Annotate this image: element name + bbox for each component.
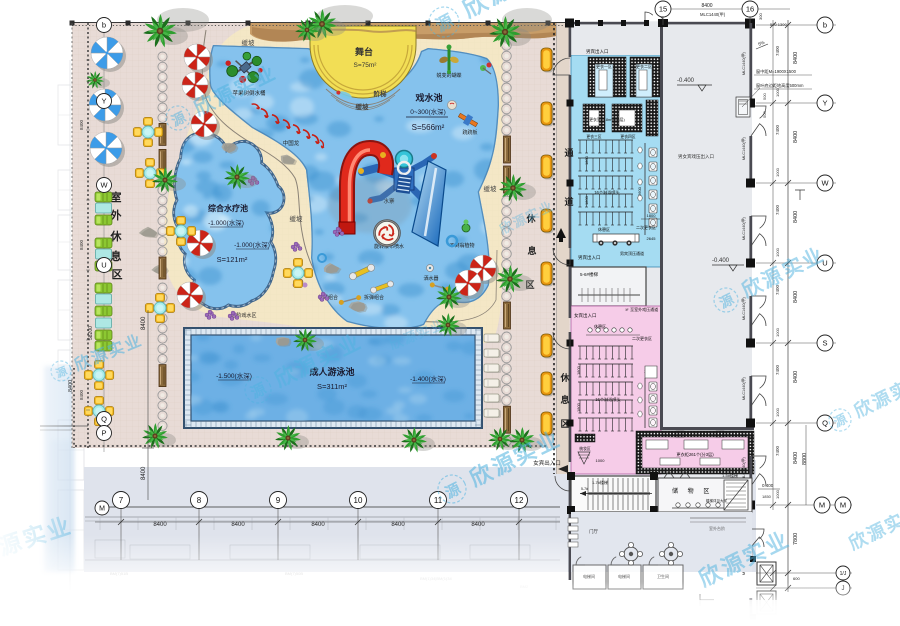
svg-text:息: 息 xyxy=(527,245,536,256)
svg-text:M: M xyxy=(819,501,825,510)
svg-text:1000: 1000 xyxy=(775,87,780,97)
svg-text:MLC1440(甲): MLC1440(甲) xyxy=(741,376,746,400)
svg-text:休憩区: 休憩区 xyxy=(598,226,610,232)
svg-text:更衣一区: 更衣一区 xyxy=(596,63,612,69)
svg-text:S: S xyxy=(822,339,827,348)
svg-text:梳妆区: 梳妆区 xyxy=(579,446,591,451)
svg-text:7400: 7400 xyxy=(775,445,780,456)
svg-text:1-5#楼梯: 1-5#楼梯 xyxy=(722,472,738,478)
svg-text:12: 12 xyxy=(515,496,524,505)
svg-text:8400: 8400 xyxy=(391,522,405,528)
svg-text:更衣二区: 更衣二区 xyxy=(636,63,652,69)
svg-text:8400: 8400 xyxy=(793,291,799,303)
svg-text:1850: 1850 xyxy=(762,494,772,499)
svg-text:8400: 8400 xyxy=(79,389,84,400)
svg-text:9: 9 xyxy=(276,496,281,505)
svg-text:8400: 8400 xyxy=(793,131,799,143)
svg-text:-1.400(水深): -1.400(水深) xyxy=(410,374,446,383)
svg-text:8400: 8400 xyxy=(311,522,325,528)
svg-text:休: 休 xyxy=(559,372,570,383)
svg-text:W: W xyxy=(821,179,829,188)
svg-text:卫生间: 卫生间 xyxy=(657,573,669,579)
svg-text:S=566m²: S=566m² xyxy=(412,123,445,132)
svg-text:戏水池: 戏水池 xyxy=(414,92,442,103)
svg-text:8400: 8400 xyxy=(793,52,799,64)
svg-text:7: 7 xyxy=(119,496,124,505)
svg-text:跷跷板: 跷跷板 xyxy=(462,129,477,136)
svg-text:☞ 至室外戏压通道: ☞ 至室外戏压通道 xyxy=(625,306,658,312)
svg-text:更衣四区: 更衣四区 xyxy=(620,134,635,139)
svg-text:-1.000(水深): -1.000(水深) xyxy=(234,240,270,249)
svg-text:通: 通 xyxy=(564,147,573,158)
svg-text:女宾出入口: 女宾出入口 xyxy=(574,312,597,319)
svg-text:缓坡: 缓坡 xyxy=(355,102,370,111)
svg-text:1000: 1000 xyxy=(775,167,780,177)
svg-text:电梯间: 电梯间 xyxy=(618,573,630,579)
svg-text:8400: 8400 xyxy=(471,522,485,528)
svg-text:8400: 8400 xyxy=(793,211,799,223)
svg-text:1800: 1800 xyxy=(576,402,581,412)
svg-text:1800: 1800 xyxy=(584,195,589,205)
svg-text:b: b xyxy=(102,21,106,30)
svg-text:息: 息 xyxy=(560,394,569,405)
svg-text:0.400: 0.400 xyxy=(762,483,774,488)
svg-text:二次更衣区: 二次更衣区 xyxy=(632,335,652,341)
svg-text:7800: 7800 xyxy=(793,533,799,545)
svg-text:缓坡: 缓坡 xyxy=(484,184,498,193)
svg-text:室外台阶: 室外台阶 xyxy=(709,525,725,531)
svg-text:b: b xyxy=(823,21,827,30)
svg-text:Q: Q xyxy=(101,415,107,424)
svg-text:58200: 58200 xyxy=(88,326,94,340)
svg-text:拆弹组合: 拆弹组合 xyxy=(364,294,384,301)
svg-text:P: P xyxy=(101,429,106,438)
svg-text:8400: 8400 xyxy=(79,239,84,250)
svg-text:1000: 1000 xyxy=(596,458,606,463)
svg-text:300: 300 xyxy=(758,13,763,20)
svg-text:储 物 区: 储 物 区 xyxy=(672,487,713,495)
svg-text:15: 15 xyxy=(659,5,667,14)
svg-text:休憩区: 休憩区 xyxy=(594,323,606,329)
svg-text:男宾顶压通道: 男宾顶压通道 xyxy=(620,250,644,256)
svg-text:区: 区 xyxy=(560,419,569,429)
svg-text:男宾出入口: 男宾出入口 xyxy=(586,48,609,55)
svg-text:1000: 1000 xyxy=(775,489,780,499)
svg-text:洒水器: 洒水器 xyxy=(423,275,438,282)
svg-text:MLC1440(甲): MLC1440(甲) xyxy=(741,216,746,240)
svg-text:M: M xyxy=(840,501,846,510)
svg-text:更衣柜261个(分3层): 更衣柜261个(分3层) xyxy=(676,451,714,458)
svg-text:门厅: 门厅 xyxy=(589,528,598,535)
svg-text:U: U xyxy=(101,261,106,270)
svg-text:8400: 8400 xyxy=(141,466,147,480)
svg-text:1/J: 1/J xyxy=(840,571,847,577)
svg-text:16个淋浴喷头: 16个淋浴喷头 xyxy=(595,396,621,403)
svg-text:综合水疗池: 综合水疗池 xyxy=(208,203,248,213)
svg-text:二次更衣区: 二次更衣区 xyxy=(636,224,656,230)
svg-text:5-7#: 5-7# xyxy=(581,487,588,491)
svg-text:MLC1440(甲): MLC1440(甲) xyxy=(741,456,746,480)
svg-text:息: 息 xyxy=(111,249,122,263)
svg-text:2645: 2645 xyxy=(647,236,657,241)
svg-text:10: 10 xyxy=(354,496,363,505)
svg-text:M: M xyxy=(99,506,105,513)
svg-text:8400: 8400 xyxy=(793,452,799,464)
svg-text:8400: 8400 xyxy=(701,3,712,9)
svg-text:-0.400: -0.400 xyxy=(712,258,730,264)
svg-text:更衣室25.8m²(分3层): 更衣室25.8m²(分3层) xyxy=(589,117,625,122)
svg-text:缓坡: 缓坡 xyxy=(242,38,256,47)
svg-text:8800: 8800 xyxy=(802,453,808,465)
svg-text:2600: 2600 xyxy=(637,186,642,196)
svg-text:阶梯: 阶梯 xyxy=(374,89,388,98)
svg-text:男宾出入口: 男宾出入口 xyxy=(578,254,601,261)
svg-text:1000: 1000 xyxy=(775,247,780,257)
svg-text:楼梯详见大样: 楼梯详见大样 xyxy=(706,498,727,503)
svg-text:S=75m²: S=75m² xyxy=(354,62,378,69)
svg-text:-1.000(水深): -1.000(水深) xyxy=(208,218,244,227)
svg-text:1800: 1800 xyxy=(647,213,657,218)
svg-text:8400: 8400 xyxy=(79,119,84,130)
svg-text:0~300(水深): 0~300(水深) xyxy=(410,107,446,116)
svg-text:电梯间: 电梯间 xyxy=(583,573,595,579)
svg-text:S=311m²: S=311m² xyxy=(317,382,348,391)
svg-text:-1.500(水深): -1.500(水深) xyxy=(216,371,252,380)
svg-text:7400: 7400 xyxy=(775,204,780,215)
svg-text:Y: Y xyxy=(101,97,106,106)
svg-text:1800: 1800 xyxy=(576,365,581,375)
svg-text:-0.400: -0.400 xyxy=(677,78,695,84)
svg-text:区: 区 xyxy=(112,268,123,281)
svg-text:1-7#楼梯: 1-7#楼梯 xyxy=(592,479,608,485)
svg-text:S=121m²: S=121m² xyxy=(217,255,248,264)
svg-text:1800: 1800 xyxy=(584,155,589,165)
svg-text:8400: 8400 xyxy=(141,316,147,330)
svg-text:更衣三区: 更衣三区 xyxy=(586,134,601,139)
svg-text:W: W xyxy=(100,181,108,190)
svg-text:500 1300: 500 1300 xyxy=(770,22,787,27)
svg-text:1000: 1000 xyxy=(775,407,780,417)
svg-text:Q: Q xyxy=(822,419,828,428)
svg-text:窗叶底边距地高度500mm: 窗叶底边距地高度500mm xyxy=(756,82,804,89)
svg-text:男女宾戏压出入口: 男女宾戏压出入口 xyxy=(678,153,714,160)
svg-text:7400: 7400 xyxy=(775,124,780,135)
svg-text:舞台: 舞台 xyxy=(355,46,373,57)
svg-text:8400: 8400 xyxy=(793,371,799,383)
svg-text:500: 500 xyxy=(762,93,767,100)
svg-text:5-6#楼梯: 5-6#楼梯 xyxy=(580,271,599,278)
svg-text:中国龙: 中国龙 xyxy=(283,139,300,147)
svg-text:7400: 7400 xyxy=(775,45,780,56)
svg-text:8: 8 xyxy=(197,496,202,505)
svg-text:8400: 8400 xyxy=(231,522,245,528)
svg-text:MLC1440(甲): MLC1440(甲) xyxy=(741,296,746,320)
svg-text:Y: Y xyxy=(822,99,827,108)
svg-text:7400: 7400 xyxy=(775,364,780,375)
svg-text:16个淋浴喷头: 16个淋浴喷头 xyxy=(594,189,620,196)
svg-text:1000: 1000 xyxy=(775,327,780,337)
svg-text:MLC1440(甲): MLC1440(甲) xyxy=(741,136,746,160)
svg-text:8400: 8400 xyxy=(153,522,167,528)
svg-text:16: 16 xyxy=(746,5,754,14)
svg-text:道: 道 xyxy=(564,196,573,207)
svg-text:窗中距M=1900X1500: 窗中距M=1900X1500 xyxy=(756,68,797,75)
svg-text:500: 500 xyxy=(762,111,767,118)
svg-text:MLC1440(甲): MLC1440(甲) xyxy=(741,51,746,75)
svg-text:缓坡: 缓坡 xyxy=(290,214,304,223)
svg-text:600: 600 xyxy=(793,576,800,581)
